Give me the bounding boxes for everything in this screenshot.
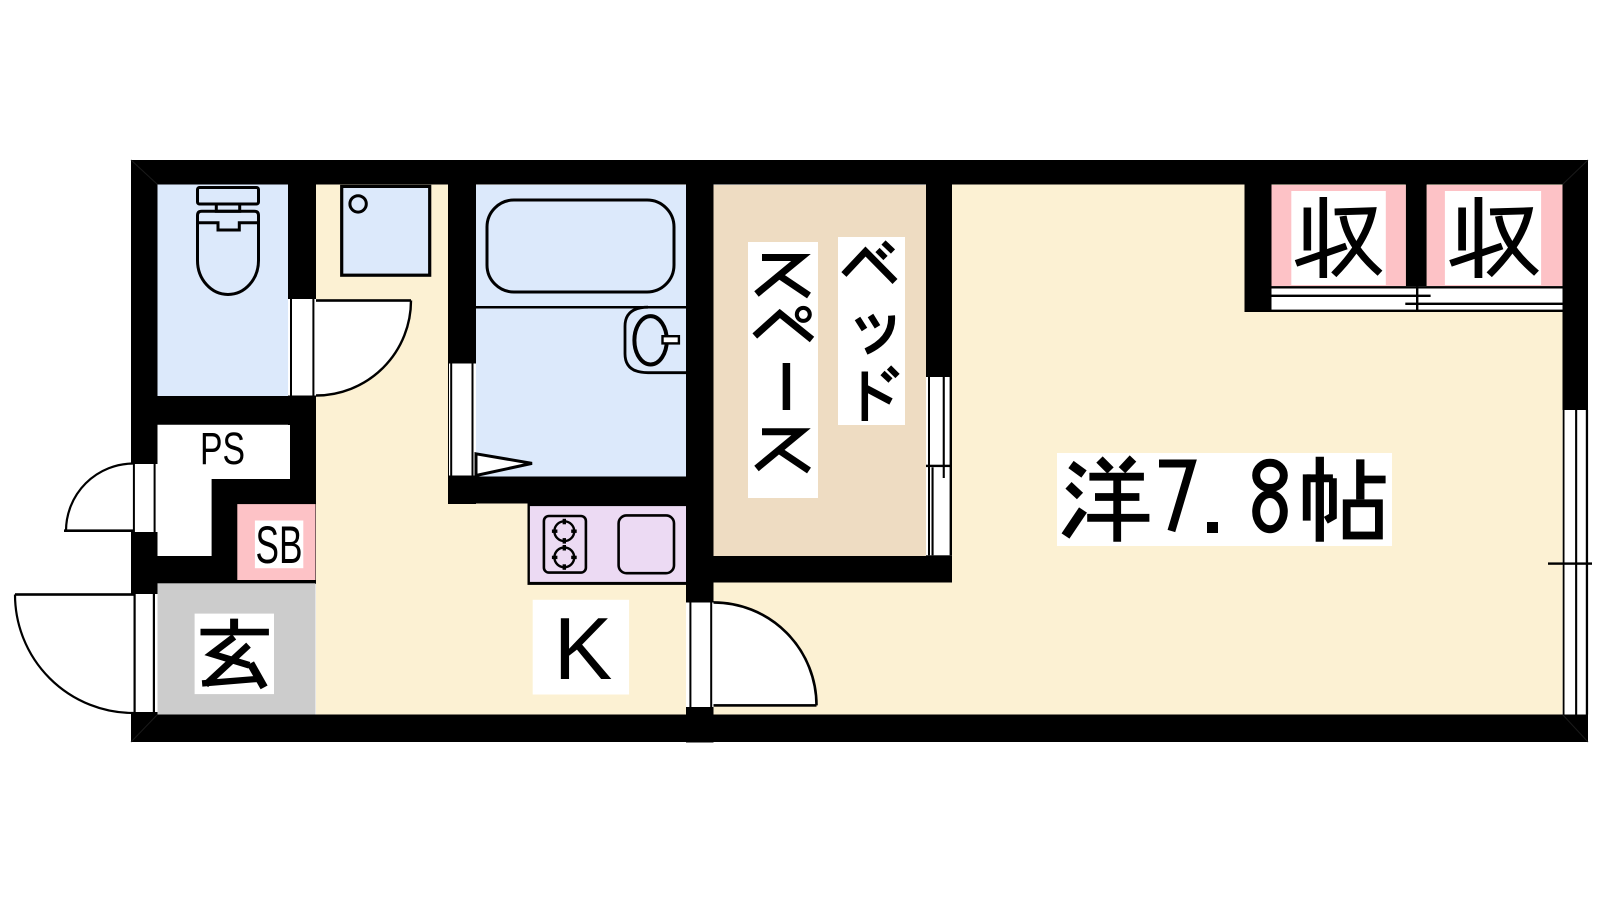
svg-text:SB: SB bbox=[256, 516, 303, 575]
svg-text:K: K bbox=[554, 599, 613, 698]
svg-text:PS: PS bbox=[200, 423, 245, 474]
